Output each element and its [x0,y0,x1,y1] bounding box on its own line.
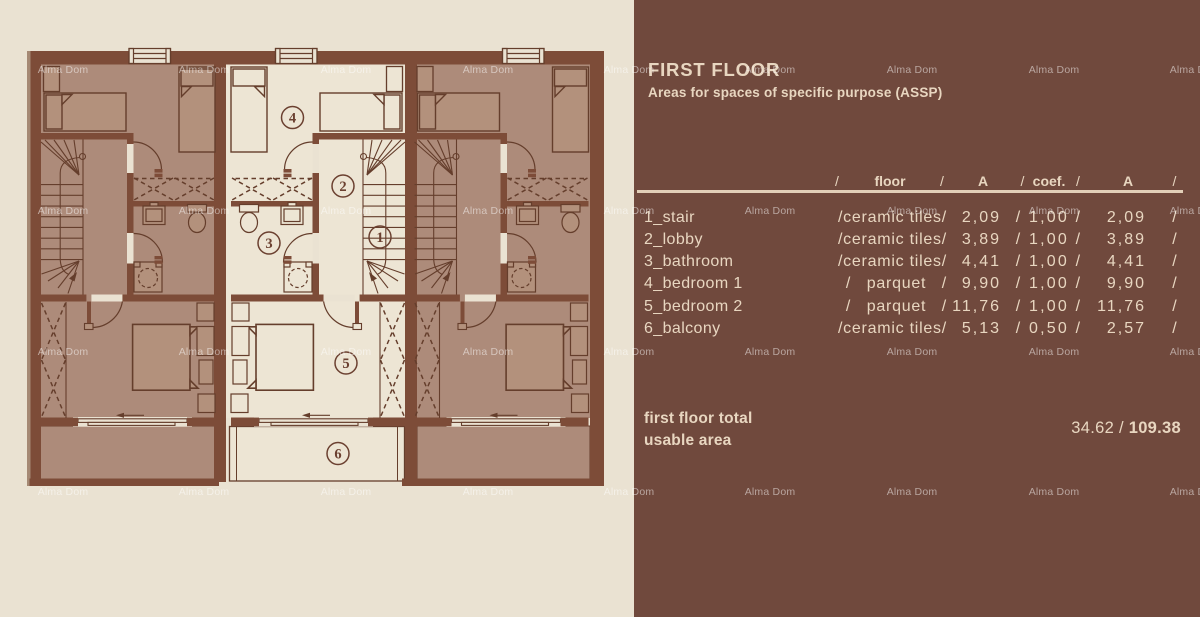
svg-text:6: 6 [334,447,341,463]
svg-text:4: 4 [289,111,296,127]
svg-text:2: 2 [339,179,346,195]
svg-text:1: 1 [376,230,383,246]
svg-text:5: 5 [342,356,349,372]
svg-text:3: 3 [265,236,272,252]
